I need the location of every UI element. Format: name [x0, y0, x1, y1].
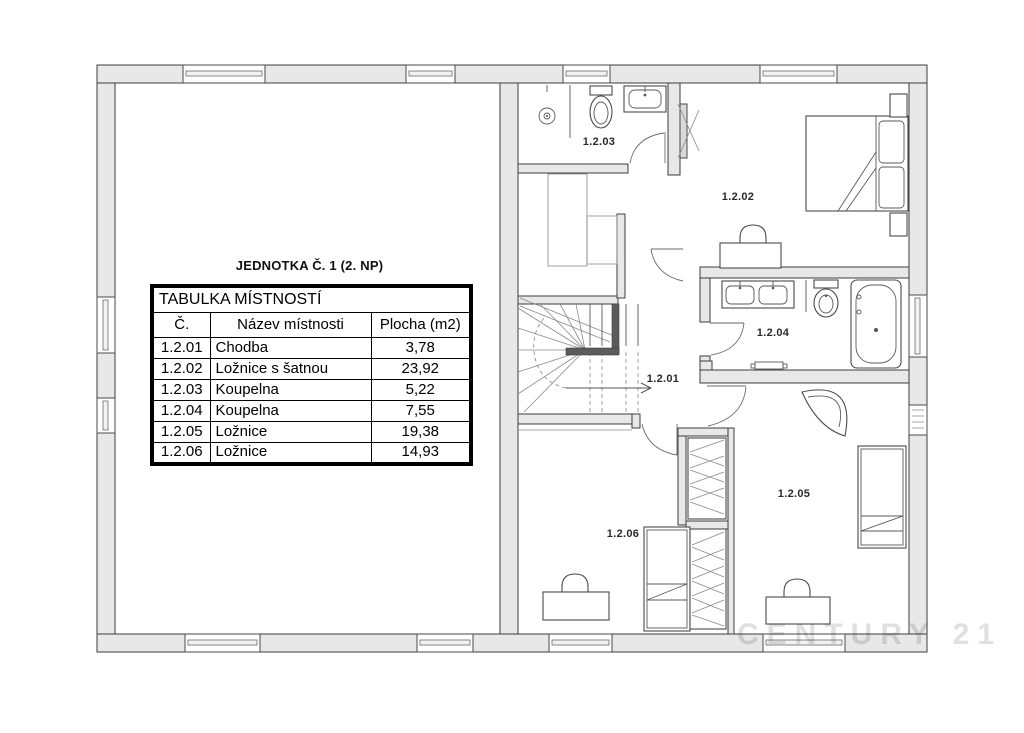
stair-handrail: [566, 348, 619, 355]
doors: [630, 104, 746, 455]
bathroom-small-fixtures: [539, 85, 666, 138]
nightstand: [890, 94, 907, 117]
stair-direction-arrow: [566, 383, 651, 393]
stair-handrail: [612, 304, 619, 354]
table-row: 1.2.05 Ložnice 19,38: [152, 422, 471, 443]
col-header-area: Plocha (m2): [371, 313, 471, 338]
room-number: 1.2.02: [152, 359, 210, 380]
wardrobes: [688, 438, 726, 629]
door-arc-icon: [642, 424, 677, 455]
single-bed: [644, 527, 690, 631]
room-area: 23,92: [371, 359, 471, 380]
room-area: 19,38: [371, 422, 471, 443]
room-table: TABULKA MÍSTNOSTÍ Č. Název místnosti Plo…: [150, 284, 473, 466]
room-number: 1.2.05: [152, 422, 210, 443]
double-sink-icon: [722, 281, 794, 308]
room-area: 3,78: [371, 338, 471, 359]
table-row: 1.2.06 Ložnice 14,93: [152, 443, 471, 464]
room-name: Koupelna: [210, 380, 371, 401]
chair-icon: [784, 579, 810, 597]
room-label: 1.2.05: [778, 488, 810, 500]
bedroom-south-furniture: [766, 390, 906, 624]
room-name: Chodba: [210, 338, 371, 359]
corner-armchair-icon: [802, 390, 847, 436]
unit-title: JEDNOTKA Č. 1 (2. NP): [150, 258, 469, 273]
door-arc-icon: [630, 132, 665, 163]
towel-radiator-icon: [751, 362, 787, 369]
room-label: 1.2.01: [647, 373, 679, 385]
table-row: 1.2.04 Koupelna 7,55: [152, 401, 471, 422]
window-icon: [760, 65, 837, 83]
room-label: 1.2.02: [722, 191, 754, 203]
col-header-number: Č.: [152, 313, 210, 338]
room-number: 1.2.03: [152, 380, 210, 401]
room-number: 1.2.01: [152, 338, 210, 359]
closet-niche: [548, 174, 587, 266]
toilet-icon: [590, 86, 612, 128]
desk-with-chair: [720, 225, 781, 268]
double-bed: [806, 116, 908, 211]
window-icon: [97, 297, 115, 353]
sink-icon: [624, 86, 666, 112]
room-name: Ložnice: [210, 443, 371, 464]
room-number: 1.2.06: [152, 443, 210, 464]
bathroom-big-fixtures: [722, 280, 901, 369]
desk: [766, 597, 830, 624]
window-icon: [406, 65, 455, 83]
room-name: Ložnice: [210, 422, 371, 443]
shower-drain-icon: [539, 85, 555, 124]
radiator-icon: [909, 405, 927, 435]
room-area: 7,55: [371, 401, 471, 422]
desk: [543, 592, 609, 620]
door-arc-icon: [707, 386, 746, 426]
staircase: [518, 174, 651, 412]
bedroom-master-furniture: [720, 94, 908, 268]
table-row: 1.2.02 Ložnice s šatnou 23,92: [152, 359, 471, 380]
window-icon: [549, 634, 612, 652]
room-label: 1.2.03: [583, 136, 615, 148]
closet-niche: [587, 216, 617, 264]
room-area: 5,22: [371, 380, 471, 401]
window-icon: [185, 634, 260, 652]
window-icon: [183, 65, 265, 83]
room-label: 1.2.04: [757, 327, 789, 339]
window-icon: [97, 398, 115, 433]
wardrobe-hatched: [690, 529, 726, 629]
door-arc-icon: [710, 323, 744, 355]
door-arc-icon: [651, 249, 683, 281]
room-number: 1.2.04: [152, 401, 210, 422]
desk: [720, 243, 781, 268]
room-name: Ložnice s šatnou: [210, 359, 371, 380]
window-icon: [417, 634, 473, 652]
wardrobe-hatched: [688, 438, 726, 519]
room-name: Koupelna: [210, 401, 371, 422]
bedroom-west-furniture: [543, 527, 690, 631]
table-row: 1.2.03 Koupelna 5,22: [152, 380, 471, 401]
room-area: 14,93: [371, 443, 471, 464]
toilet-icon: [814, 280, 838, 317]
chair-icon: [562, 574, 588, 592]
bathtub-icon: [851, 280, 901, 368]
entrance-door-icon: [678, 104, 699, 158]
floorplan-page: 1.2.03 1.2.02 1.2.04 1.2.01 1.2.05 1.2.0…: [0, 0, 1024, 733]
desk-with-chair: [543, 574, 609, 620]
nightstand: [890, 213, 907, 236]
desk-with-chair: [766, 579, 830, 624]
single-bed: [858, 446, 906, 548]
table-row: 1.2.01 Chodba 3,78: [152, 338, 471, 359]
window-icon: [909, 295, 927, 357]
room-label: 1.2.06: [607, 528, 639, 540]
col-header-name: Název místnosti: [210, 313, 371, 338]
chair-icon: [740, 225, 766, 243]
window-icon: [563, 65, 610, 83]
window-icon: [763, 634, 845, 652]
table-title: TABULKA MÍSTNOSTÍ: [152, 286, 471, 313]
